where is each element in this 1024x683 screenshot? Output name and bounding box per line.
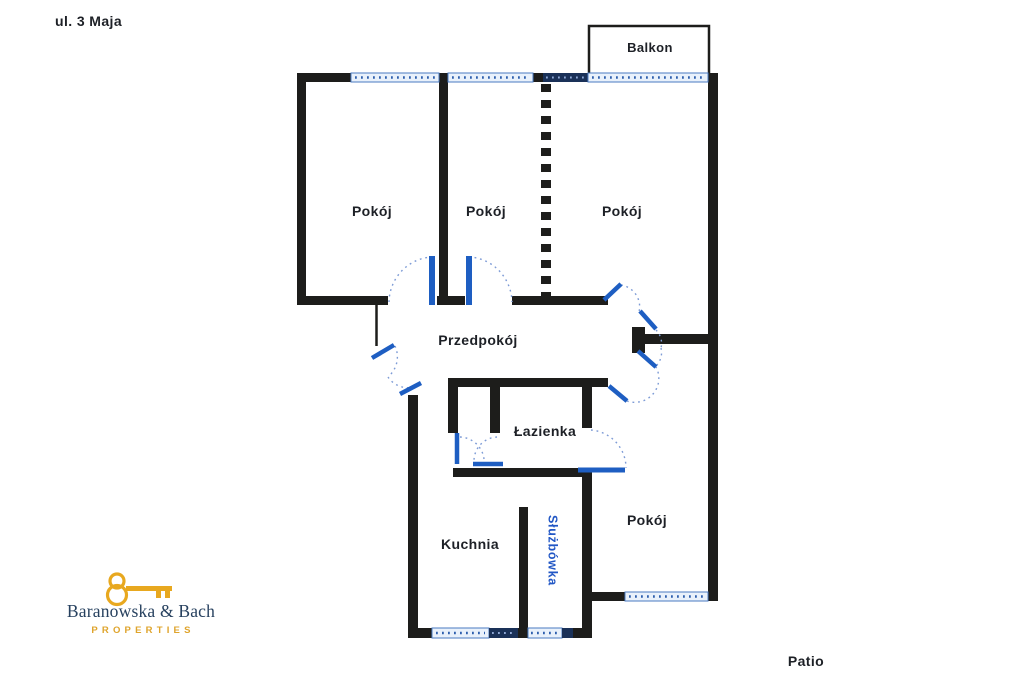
door-arc bbox=[656, 348, 662, 366]
door-leaf bbox=[400, 383, 421, 394]
window bbox=[528, 628, 562, 638]
room-label-room-nw: Pokój bbox=[312, 204, 432, 218]
door-leaf bbox=[429, 256, 435, 305]
logo-tagline: PROPERTIES bbox=[58, 626, 228, 636]
door-leaf bbox=[638, 351, 656, 367]
door-leaf bbox=[609, 386, 627, 401]
room-label-room-se: Pokój bbox=[587, 513, 707, 527]
window bbox=[432, 628, 489, 638]
wall-segment bbox=[453, 468, 592, 477]
room-label-balcony: Balkon bbox=[590, 41, 710, 54]
wall-segment bbox=[408, 395, 418, 638]
door-leaf bbox=[372, 345, 394, 358]
door-arc bbox=[469, 257, 512, 302]
door-leaf bbox=[466, 256, 472, 305]
wall-segment bbox=[297, 73, 306, 305]
door-leaf bbox=[640, 311, 656, 329]
door-arc bbox=[627, 367, 659, 402]
room-label-hallway: Przedpokój bbox=[398, 333, 558, 347]
walls bbox=[297, 73, 718, 638]
wall-segment bbox=[645, 334, 708, 344]
wall-segment bbox=[632, 327, 645, 353]
wall-segment bbox=[582, 387, 592, 428]
room-label-maids-room: Służbówka bbox=[546, 515, 559, 605]
window bbox=[351, 73, 439, 82]
street-label: ul. 3 Maja bbox=[55, 14, 175, 28]
key-icon bbox=[108, 574, 173, 605]
wall-segment bbox=[448, 378, 608, 387]
wall-segment bbox=[582, 477, 592, 638]
windows bbox=[351, 73, 708, 638]
door-arc bbox=[621, 285, 640, 312]
patio-label: Patio bbox=[746, 654, 866, 668]
logo-agency-name: Baranowska & Bach bbox=[56, 603, 226, 621]
door-arc bbox=[474, 437, 497, 460]
room-label-bathroom: Łazienka bbox=[485, 424, 605, 438]
window-dark bbox=[489, 628, 518, 638]
window-dark bbox=[562, 628, 573, 638]
room-label-kitchen: Kuchnia bbox=[410, 537, 530, 551]
door-arc bbox=[460, 437, 484, 459]
door-leaf bbox=[604, 284, 621, 300]
wall-segment bbox=[708, 73, 718, 601]
door-arc bbox=[389, 257, 432, 302]
wall-segment bbox=[297, 296, 388, 305]
wall-segment bbox=[439, 73, 448, 305]
wall-segment bbox=[533, 73, 544, 82]
balcony-door-window bbox=[543, 73, 588, 82]
floor-plan-canvas: ul. 3 Maja Balkon Pokój Pokój Pokój Prze… bbox=[0, 0, 1024, 683]
room-label-room-mid: Pokój bbox=[426, 204, 546, 218]
window bbox=[448, 73, 533, 82]
window bbox=[588, 73, 708, 82]
wall-segment bbox=[519, 507, 528, 638]
door-arc bbox=[389, 346, 397, 376]
window bbox=[625, 592, 708, 601]
wall-segment bbox=[437, 296, 465, 305]
room-label-room-ne: Pokój bbox=[562, 204, 682, 218]
wall-segment bbox=[448, 387, 458, 433]
wall-segment bbox=[512, 296, 608, 305]
